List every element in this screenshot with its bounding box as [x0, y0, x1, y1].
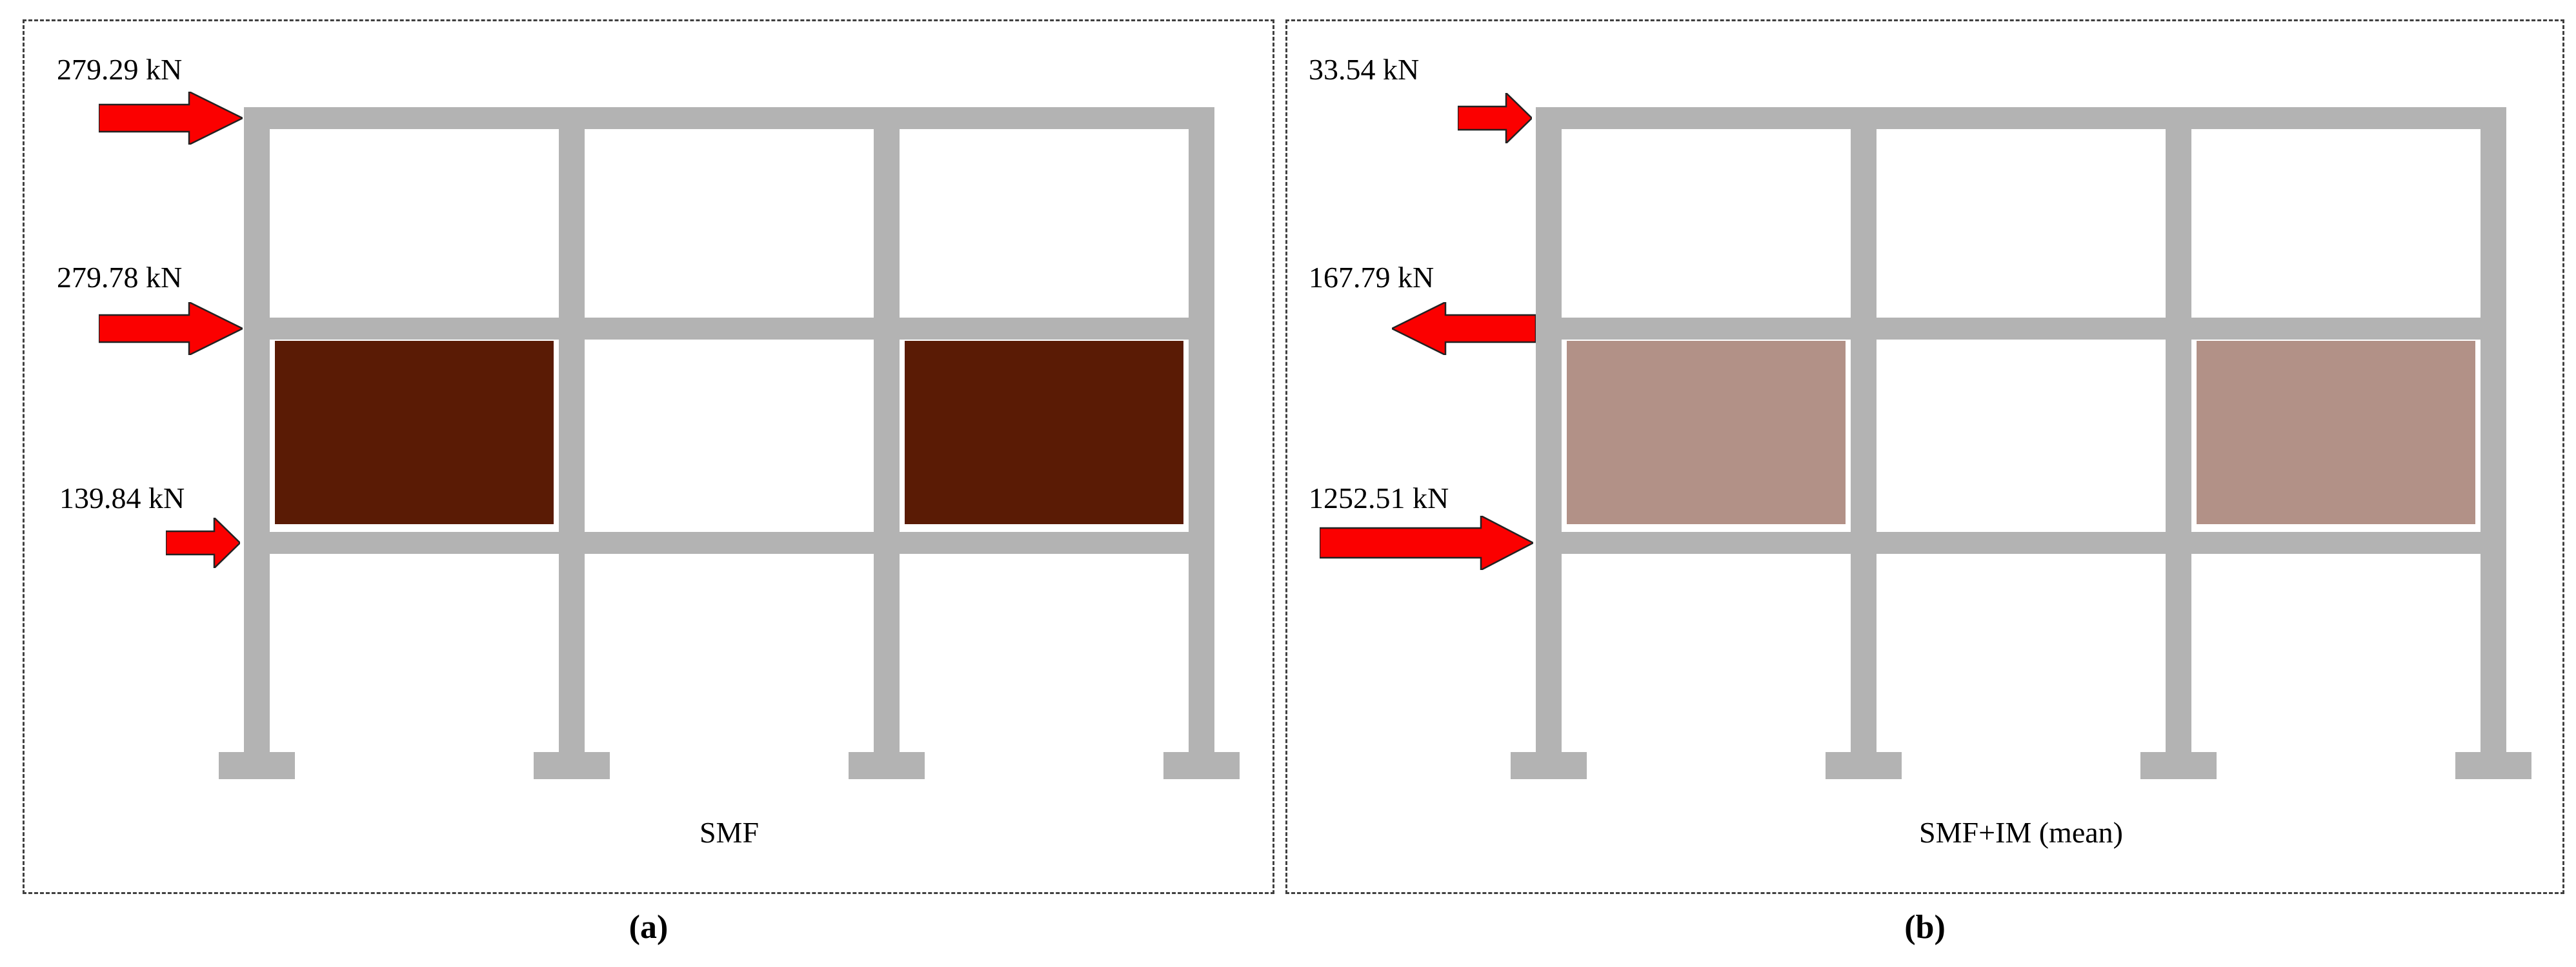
beam — [1536, 318, 2506, 340]
beam — [244, 532, 1214, 554]
infill-wall — [2197, 341, 2475, 524]
column — [1536, 107, 1562, 752]
force-value-label: 1252.51 kN — [1309, 483, 1449, 514]
beam — [244, 107, 1214, 129]
frame-name-label: SMF+IM (mean) — [1919, 817, 2123, 848]
footing — [1826, 752, 1902, 779]
force-arrow-right-icon — [99, 302, 243, 355]
footing — [849, 752, 925, 779]
infill-wall — [1567, 341, 1846, 524]
column — [874, 107, 900, 752]
footing — [1511, 752, 1587, 779]
force-arrow-right-icon — [1320, 516, 1533, 570]
force-value-label: 279.29 kN — [57, 54, 182, 85]
beam — [1536, 532, 2506, 554]
force-arrow-right-icon — [166, 518, 240, 568]
footing — [2455, 752, 2531, 779]
subfigure-caption-a: (a) — [629, 910, 669, 946]
figure: 279.29 kN 279.78 kN 139.84 kN SMF (a) — [0, 0, 2576, 967]
force-value-label: 33.54 kN — [1309, 54, 1419, 85]
frame-name-label: SMF — [699, 817, 759, 848]
column — [244, 107, 270, 752]
infill-wall — [275, 341, 554, 524]
force-value-label: 279.78 kN — [57, 262, 182, 293]
force-arrow-right-icon — [99, 92, 243, 145]
force-arrow-right-icon — [1458, 93, 1532, 143]
column — [1851, 107, 1877, 752]
footing — [534, 752, 610, 779]
force-value-label: 167.79 kN — [1309, 262, 1434, 293]
infill-wall — [905, 341, 1183, 524]
beam — [244, 318, 1214, 340]
force-value-label: 139.84 kN — [59, 483, 185, 514]
column — [1189, 107, 1214, 752]
footing — [2140, 752, 2217, 779]
beam — [1536, 107, 2506, 129]
footing — [219, 752, 295, 779]
force-arrow-left-icon — [1392, 302, 1536, 355]
column — [2166, 107, 2191, 752]
column — [2480, 107, 2506, 752]
subfigure-caption-b: (b) — [1904, 910, 1946, 946]
column — [559, 107, 585, 752]
footing — [1163, 752, 1240, 779]
